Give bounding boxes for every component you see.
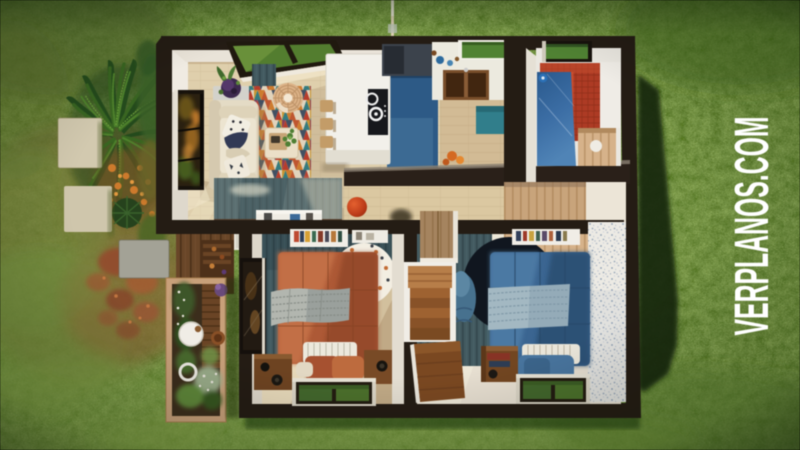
svg-text:VERPLANOS.COM: VERPLANOS.COM	[726, 117, 779, 336]
